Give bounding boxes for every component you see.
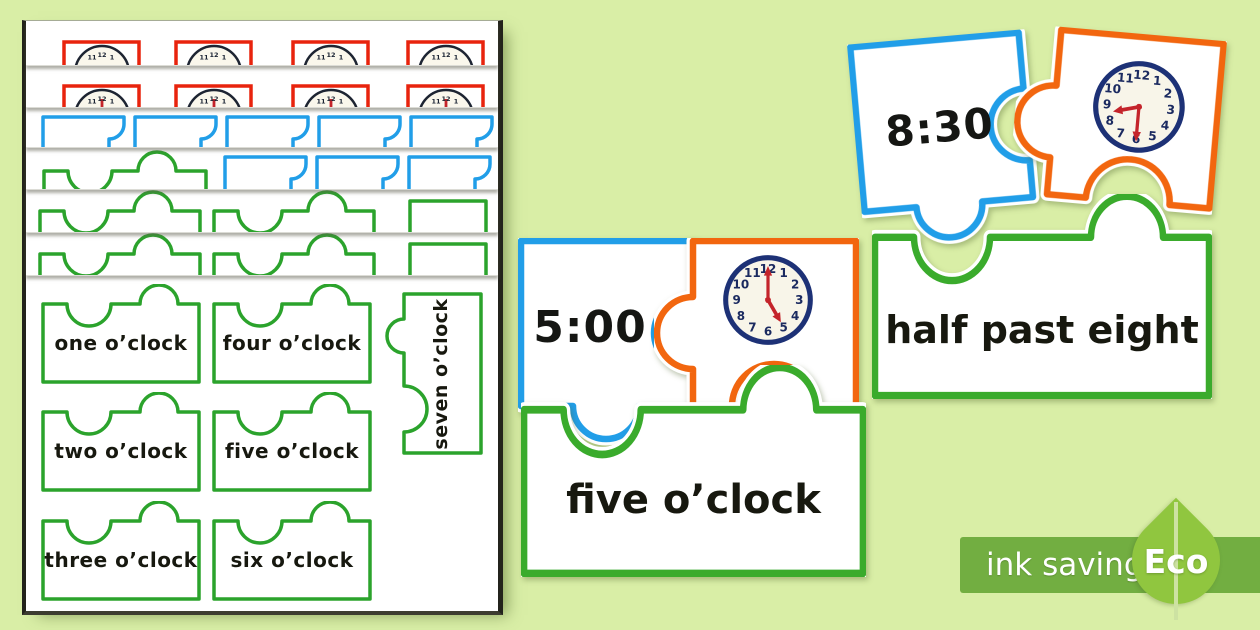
digital-time-label: 5:00 (520, 302, 660, 353)
mini-clock (187, 46, 241, 65)
puzzle-piece-three-oclock: three o’clock (41, 501, 201, 601)
mini-clock (75, 90, 129, 107)
stacked-page-5 (26, 189, 498, 233)
resource-preview: 11 12 1 11 12 1 12 1 (0, 0, 1260, 630)
eco-leaf: Eco (1130, 488, 1222, 630)
stacked-page-2 (26, 65, 498, 108)
mini-clock (419, 90, 473, 107)
words-piece-830: half past eight (872, 194, 1212, 399)
clock-center-dot (765, 297, 771, 303)
mini-clock (419, 46, 473, 65)
mini-clock (187, 90, 241, 107)
analog-clock-500 (722, 254, 814, 346)
piece-label: five o’clock (212, 439, 372, 463)
puzzle-piece-five-oclock: five o’clock (212, 392, 372, 492)
mini-clock (304, 90, 358, 107)
page-stack: one o’clock four o’clock seven o’clock t… (22, 20, 503, 615)
piece-label: one o’clock (41, 331, 201, 355)
eco-label: Eco (1130, 542, 1222, 581)
mini-clock (75, 46, 129, 65)
words-label: half past eight (872, 308, 1212, 352)
assembled-puzzle-830: 8:30 (848, 24, 1260, 416)
words-label: five o’clock (521, 477, 866, 523)
stacked-page-3 (26, 107, 498, 148)
mini-clock (304, 46, 358, 65)
word-cards-page: one o’clock four o’clock seven o’clock t… (26, 275, 498, 611)
words-piece-500: five o’clock (521, 365, 866, 577)
puzzle-piece-four-oclock: four o’clock (212, 284, 372, 384)
puzzle-piece-two-oclock: two o’clock (41, 392, 201, 492)
piece-label: four o’clock (212, 331, 372, 355)
stacked-page-1 (26, 21, 498, 66)
stacked-page-6 (26, 232, 498, 276)
piece-label: three o’clock (41, 548, 201, 572)
puzzle-piece-seven-oclock: seven o’clock (384, 291, 484, 456)
piece-label: two o’clock (41, 439, 201, 463)
stacked-page-4 (26, 147, 498, 190)
ink-saving-label: ink saving (986, 547, 1144, 583)
assembled-puzzle-500: 5:00 (518, 238, 878, 583)
piece-label: six o’clock (212, 548, 372, 572)
puzzle-piece-one-oclock: one o’clock (41, 284, 201, 384)
piece-label: seven o’clock (430, 294, 454, 454)
analog-clock-830 (1088, 56, 1190, 158)
puzzle-piece-six-oclock: six o’clock (212, 501, 372, 601)
